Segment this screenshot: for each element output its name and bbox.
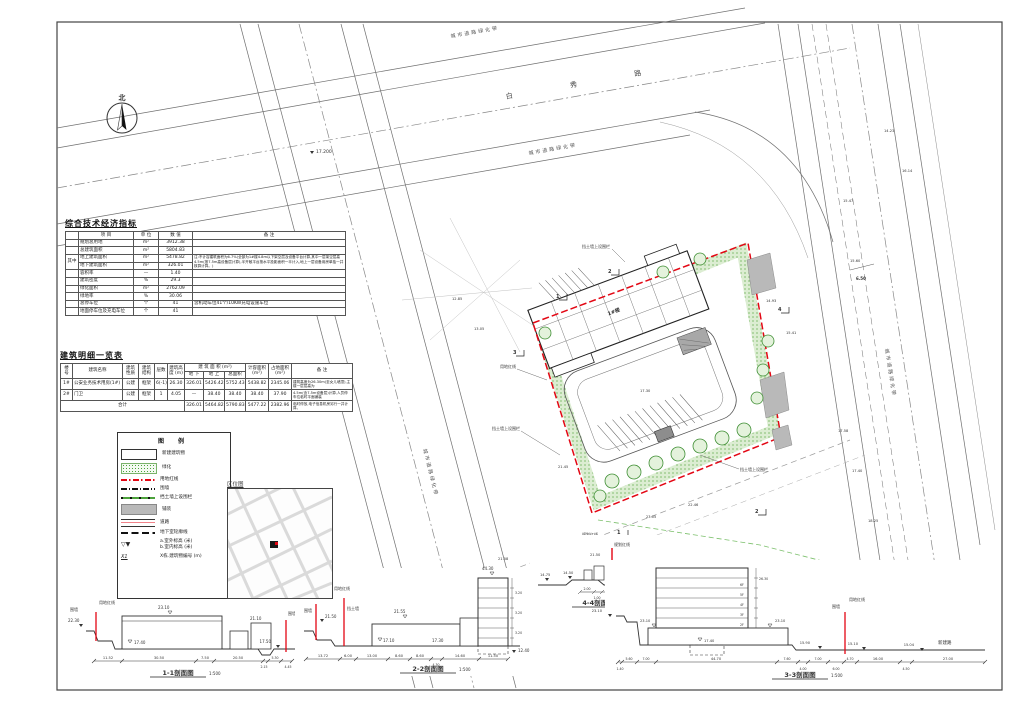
svg-text:17.50: 17.50	[260, 639, 272, 644]
svg-text:2-2剖面图: 2-2剖面图	[412, 664, 444, 673]
svg-text:挡土墙上设围栏: 挡土墙上设围栏	[492, 425, 520, 431]
svg-text:30.50: 30.50	[154, 656, 165, 660]
svg-text:新建路: 新建路	[938, 639, 952, 646]
building-number-symbol: X1	[121, 554, 155, 560]
svg-text:23.10: 23.10	[640, 619, 651, 623]
section-1-1: 用地红线 围墙 22.30 23.10 17.40 21.10 围墙 17.50…	[68, 595, 304, 683]
svg-text:2: 2	[755, 509, 759, 515]
drawing-canvas: 1#楼 挡土墙上设围栏 挡土墙上设围栏 挡土墙上设围栏	[0, 0, 1010, 714]
svg-text:4F: 4F	[740, 603, 744, 607]
svg-text:21.55: 21.55	[394, 609, 406, 614]
svg-text:12.40: 12.40	[518, 648, 530, 653]
svg-text:6.50: 6.50	[856, 276, 866, 281]
svg-text:21.50: 21.50	[590, 553, 601, 557]
svg-text:12.85: 12.85	[452, 297, 462, 301]
svg-text:17.30: 17.30	[432, 638, 444, 643]
indicators-table-title: 综合技术经济指标	[65, 218, 137, 229]
svg-text:26.30: 26.30	[759, 577, 768, 581]
svg-text:21.50: 21.50	[325, 614, 337, 619]
svg-text:3: 3	[513, 350, 517, 356]
north-arrow: 北	[107, 93, 137, 133]
svg-text:3.20: 3.20	[515, 591, 522, 595]
legend-item: 绿化	[118, 461, 230, 475]
svg-text:14.93: 14.93	[766, 299, 776, 303]
elevation-symbol: ▽▼	[121, 542, 155, 548]
svg-text:15.60: 15.60	[850, 259, 861, 263]
svg-text:用地红线: 用地红线	[500, 363, 516, 369]
svg-text:用地红线: 用地红线	[99, 599, 115, 605]
svg-text:16.00: 16.00	[873, 657, 884, 661]
svg-text:11.50: 11.50	[488, 654, 499, 658]
svg-text:14.60: 14.60	[455, 654, 466, 658]
location-map	[227, 488, 333, 599]
wall-symbol	[121, 488, 155, 489]
svg-text:7.50: 7.50	[201, 656, 210, 660]
svg-text:规划红线: 规划红线	[614, 541, 630, 547]
paving-symbol	[121, 504, 157, 515]
svg-text:17.40: 17.40	[852, 469, 863, 473]
buildings-table-title: 建筑明细一览表	[60, 350, 123, 361]
svg-text:6.00: 6.00	[832, 667, 839, 671]
svg-text:14.23: 14.23	[884, 129, 894, 133]
svg-text:4: 4	[778, 307, 782, 313]
svg-text:7.60: 7.60	[783, 657, 790, 661]
svg-text:挡土墙: 挡土墙	[347, 605, 359, 611]
svg-text:8.60: 8.60	[416, 654, 425, 658]
svg-text:挡土墙上设围栏: 挡土墙上设围栏	[740, 466, 768, 472]
svg-text:1:500: 1:500	[831, 673, 843, 678]
svg-text:6F: 6F	[740, 583, 744, 587]
svg-text:围墙: 围墙	[832, 603, 840, 609]
road-spot-elevations: 15.47 15.60 17.58 17.40 18.25 14.23 16.1…	[838, 129, 913, 523]
legend-item: ▽▼ a.室外标高 (米)b.室内标高 (米)	[118, 537, 230, 552]
road-symbol	[121, 519, 155, 527]
legend-item: 铺装	[118, 503, 230, 517]
svg-text:15.10: 15.10	[848, 642, 859, 646]
svg-text:3-3剖面图: 3-3剖面图	[784, 670, 816, 679]
svg-text:7.00: 7.00	[814, 657, 821, 661]
red-line-symbol	[121, 479, 155, 481]
svg-text:17.30: 17.30	[640, 389, 651, 393]
svg-text:27.00: 27.00	[943, 657, 954, 661]
svg-text:17.58: 17.58	[838, 429, 849, 433]
svg-text:1:500: 1:500	[459, 667, 471, 672]
indicators-table: 项 目单 位数 值备 注 规划总用地m²3912.38 总建筑面积m²5804.…	[65, 231, 346, 316]
retaining-wall-symbol	[121, 497, 155, 499]
svg-text:5F: 5F	[740, 593, 744, 597]
svg-text:18.25: 18.25	[868, 519, 878, 523]
svg-text:22.30: 22.30	[68, 618, 80, 623]
svg-text:16.14: 16.14	[902, 169, 913, 173]
svg-text:6.00: 6.00	[344, 654, 353, 658]
svg-text:4.70: 4.70	[846, 657, 853, 661]
svg-text:20.50: 20.50	[233, 656, 244, 660]
svg-text:1-1剖面图: 1-1剖面图	[162, 668, 194, 677]
svg-text:13.72: 13.72	[318, 654, 328, 658]
top-road	[57, 8, 850, 258]
svg-text:5.30: 5.30	[271, 656, 278, 660]
svg-text:2F: 2F	[740, 623, 744, 627]
svg-text:围墙: 围墙	[288, 610, 296, 616]
svg-text:23.10: 23.10	[158, 605, 170, 610]
svg-text:23.10: 23.10	[775, 619, 786, 623]
legend-item: 地下室轮廓线	[118, 528, 230, 537]
svg-text:8.60: 8.60	[395, 654, 404, 658]
svg-text:17.200: 17.200	[316, 149, 332, 155]
site-plan-drawing-sheet: 1#楼 挡土墙上设围栏 挡土墙上设围栏 挡土墙上设围栏	[0, 0, 1010, 714]
svg-text:4.45: 4.45	[284, 665, 291, 669]
svg-text:44.70: 44.70	[711, 657, 722, 661]
svg-text:21.10: 21.10	[250, 616, 262, 621]
svg-text:4.50: 4.50	[902, 667, 909, 671]
svg-text:3.20: 3.20	[515, 611, 522, 615]
svg-text:用地红线: 用地红线	[334, 585, 350, 591]
svg-text:17.40: 17.40	[134, 640, 146, 645]
svg-text:15.41: 15.41	[786, 331, 796, 335]
svg-text:23.10: 23.10	[592, 609, 603, 613]
svg-text:围墙: 围墙	[304, 607, 312, 613]
red-line-label: 用地红线	[500, 363, 547, 380]
svg-text:14.75: 14.75	[540, 573, 550, 577]
survey-lines	[402, 218, 540, 352]
svg-text:2.00: 2.00	[583, 587, 590, 591]
svg-text:22.46: 22.46	[688, 503, 699, 507]
svg-text:15.04: 15.04	[904, 643, 915, 647]
svg-text:围墙: 围墙	[70, 606, 78, 612]
svg-text:3F: 3F	[740, 613, 744, 617]
svg-text:23.05: 23.05	[646, 515, 656, 519]
svg-text:5.60: 5.60	[625, 657, 632, 661]
legend-item: 用地红线	[118, 475, 230, 484]
buildings-table: 楼 号 建筑名称 建筑性质 建筑结构 层数 建筑高度 (m) 建 筑 面 积 (…	[60, 363, 353, 412]
legend-title: 图 例	[118, 433, 230, 447]
legend-item: 道路	[118, 517, 230, 528]
legend-item: X1X栋.建筑物编号 (m)	[118, 553, 230, 562]
svg-text:1: 1	[556, 294, 560, 300]
svg-text:1.40: 1.40	[616, 667, 623, 671]
greenery-symbol	[121, 463, 157, 474]
svg-text:用地红线: 用地红线	[849, 596, 865, 602]
svg-text:13.00: 13.00	[367, 654, 378, 658]
svg-text:13.05: 13.05	[474, 327, 484, 331]
svg-text:21.58: 21.58	[498, 557, 509, 561]
location-map-title: 区位图	[227, 480, 244, 488]
svg-text:15.47: 15.47	[843, 199, 853, 203]
site-plan: 1#楼 挡土墙上设围栏 挡土墙上设围栏 挡土墙上设围栏	[310, 129, 913, 576]
basement-outline-symbol	[121, 532, 155, 535]
svg-text:1:500: 1:500	[209, 671, 221, 676]
right-road	[778, 24, 995, 618]
legend-box: 图 例 新建建筑物 绿化 用地红线 围墙 挡土墙上设围栏 铺装 道路 地下室轮廓…	[117, 432, 231, 599]
svg-text:7.00: 7.00	[642, 657, 649, 661]
svg-text:21.45: 21.45	[558, 465, 568, 469]
svg-text:17.10: 17.10	[383, 638, 395, 643]
legend-item: 挡土墙上设围栏	[118, 494, 230, 503]
svg-text:3.20: 3.20	[515, 631, 522, 635]
svg-text:17.40: 17.40	[704, 639, 715, 643]
section-3-3: 23.10 23.10 23.10 2F 3F 4F 5F 6F 26.30 1…	[592, 560, 997, 682]
svg-text:2: 2	[608, 269, 612, 275]
svg-text:44.30: 44.30	[482, 566, 494, 571]
north-label: 北	[119, 93, 126, 102]
svg-text:15.90: 15.90	[800, 641, 811, 645]
svg-text:挡土墙上设围栏: 挡土墙上设围栏	[582, 243, 610, 249]
legend-item: 新建建筑物	[118, 447, 230, 461]
svg-text:14.50: 14.50	[563, 571, 574, 575]
svg-text:2.15: 2.15	[260, 665, 267, 669]
svg-text:11.52: 11.52	[103, 656, 113, 660]
legend-item: 围墙	[118, 485, 230, 494]
new-building-symbol	[121, 449, 157, 460]
